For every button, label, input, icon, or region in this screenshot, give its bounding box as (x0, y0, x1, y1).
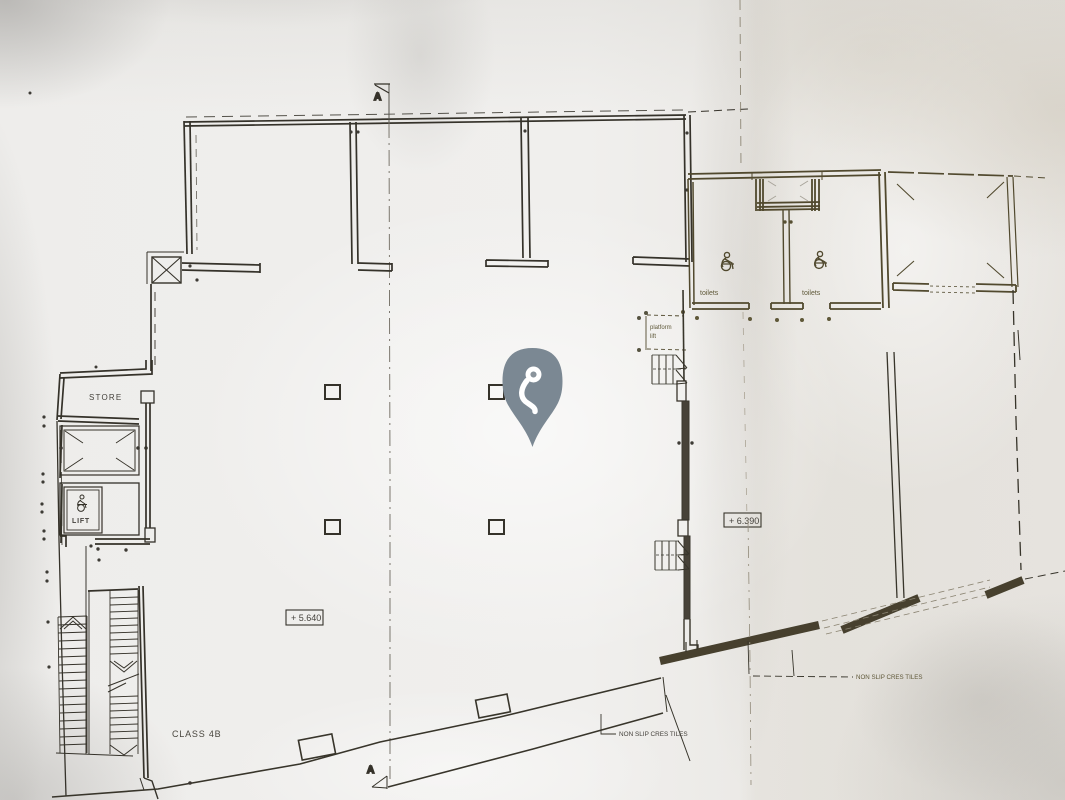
svg-text:platform: platform (650, 325, 672, 331)
svg-text:A: A (367, 765, 374, 776)
svg-text:+ 5.640: + 5.640 (291, 613, 321, 623)
svg-text:A: A (374, 92, 381, 103)
svg-text:NON SLIP CRES TILES: NON SLIP CRES TILES (619, 731, 688, 738)
svg-text:lift: lift (650, 334, 656, 340)
svg-text:LIFT: LIFT (72, 518, 90, 525)
svg-text:CLASS 4B: CLASS 4B (172, 729, 221, 739)
svg-text:+ 6.390: + 6.390 (729, 516, 759, 526)
svg-text:NON SLIP CRES TILES: NON SLIP CRES TILES (856, 674, 922, 681)
svg-text:toilets: toilets (700, 290, 719, 297)
svg-text:STORE: STORE (89, 393, 122, 402)
svg-text:toilets: toilets (802, 290, 821, 297)
